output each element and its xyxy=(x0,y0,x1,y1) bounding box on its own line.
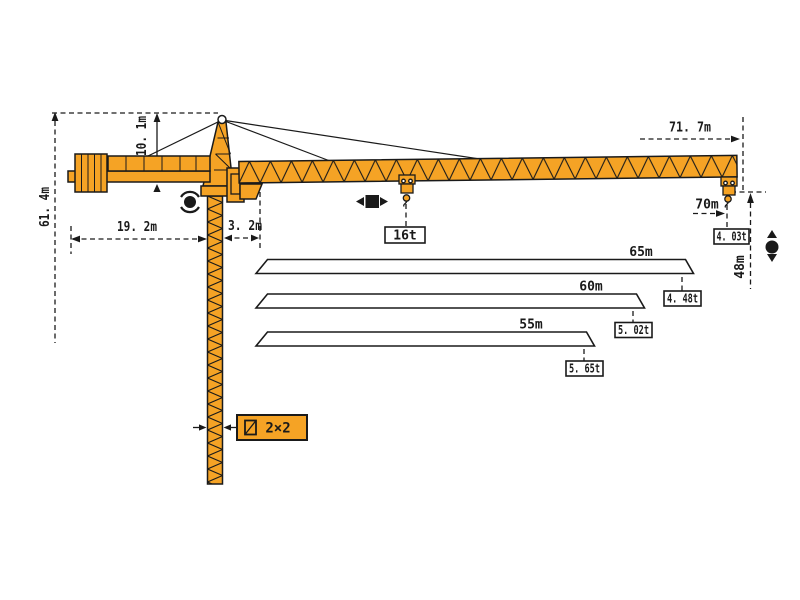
mast-section-label: 2×2 xyxy=(265,421,290,437)
hook-height-label: 48m xyxy=(733,255,748,279)
total-height-label: 61. 4m xyxy=(38,187,53,227)
crane-diagram-canvas: 2×2 65m 4. 48t 60m 5. 02t 55m 5. 65t xyxy=(0,0,800,600)
section-arrow-left xyxy=(199,424,207,430)
root-offset-arrow-right xyxy=(251,235,259,242)
tip-load-65m: 4. 48t xyxy=(667,291,698,306)
head-height-arrow-low xyxy=(153,184,160,192)
tip-radius-label: 70m xyxy=(695,198,719,213)
jib-pendant-1 xyxy=(222,120,330,161)
jib-option-bar-55m xyxy=(256,332,595,346)
tip-load-55m: 5. 65t xyxy=(569,361,600,376)
load-labels: 16t 4. 03t xyxy=(385,227,749,244)
counterjib-beam xyxy=(108,156,210,171)
overall-radius-arrow xyxy=(731,136,740,143)
root-offset-label: 3. 2m xyxy=(228,219,262,234)
trolley-mid xyxy=(399,175,415,207)
hook-height-arrow-up xyxy=(747,193,754,203)
jib-option-60m-label: 60m xyxy=(579,280,603,295)
tip-load-60m: 5. 02t xyxy=(618,322,649,337)
jib-option-65m-label: 65m xyxy=(629,245,653,260)
apex-pin xyxy=(218,116,226,124)
jib-options: 65m 4. 48t 60m 5. 02t 55m 5. 65t xyxy=(256,245,701,376)
jib-pendant-2 xyxy=(222,120,493,161)
jib-option-bar-60m xyxy=(256,294,645,308)
head-height-arrow-up xyxy=(154,113,161,122)
jib-option-55m-label: 55m xyxy=(519,318,543,333)
jib-root-bracket xyxy=(240,184,262,199)
counterjib-length-label: 19. 2m xyxy=(117,220,157,235)
mast-lattice xyxy=(208,196,223,484)
head-height-label: 10. 1m xyxy=(135,116,150,156)
section-arrow-right xyxy=(224,424,232,430)
jib xyxy=(239,155,737,183)
tip-capacity-label: 4. 03t xyxy=(717,229,747,244)
crane-diagram: 2×2 65m 4. 48t 60m 5. 02t 55m 5. 65t xyxy=(0,0,800,600)
max-capacity-label: 16t xyxy=(393,229,416,244)
hoist-symbol xyxy=(766,230,779,262)
pendant-lines xyxy=(148,120,493,161)
jib-option-bar-65m xyxy=(256,260,694,274)
counterjib-arrow-left xyxy=(71,236,80,243)
overall-radius-label: 71. 7m xyxy=(669,121,711,136)
jib-lattice xyxy=(239,155,737,183)
slewing-symbol xyxy=(181,192,199,212)
counterweight xyxy=(75,154,107,192)
root-offset-arrow-left xyxy=(224,235,232,242)
trolley-travel-symbol xyxy=(356,195,388,208)
trolley-tip xyxy=(721,177,737,208)
counterjib-arrow-right xyxy=(198,236,207,243)
